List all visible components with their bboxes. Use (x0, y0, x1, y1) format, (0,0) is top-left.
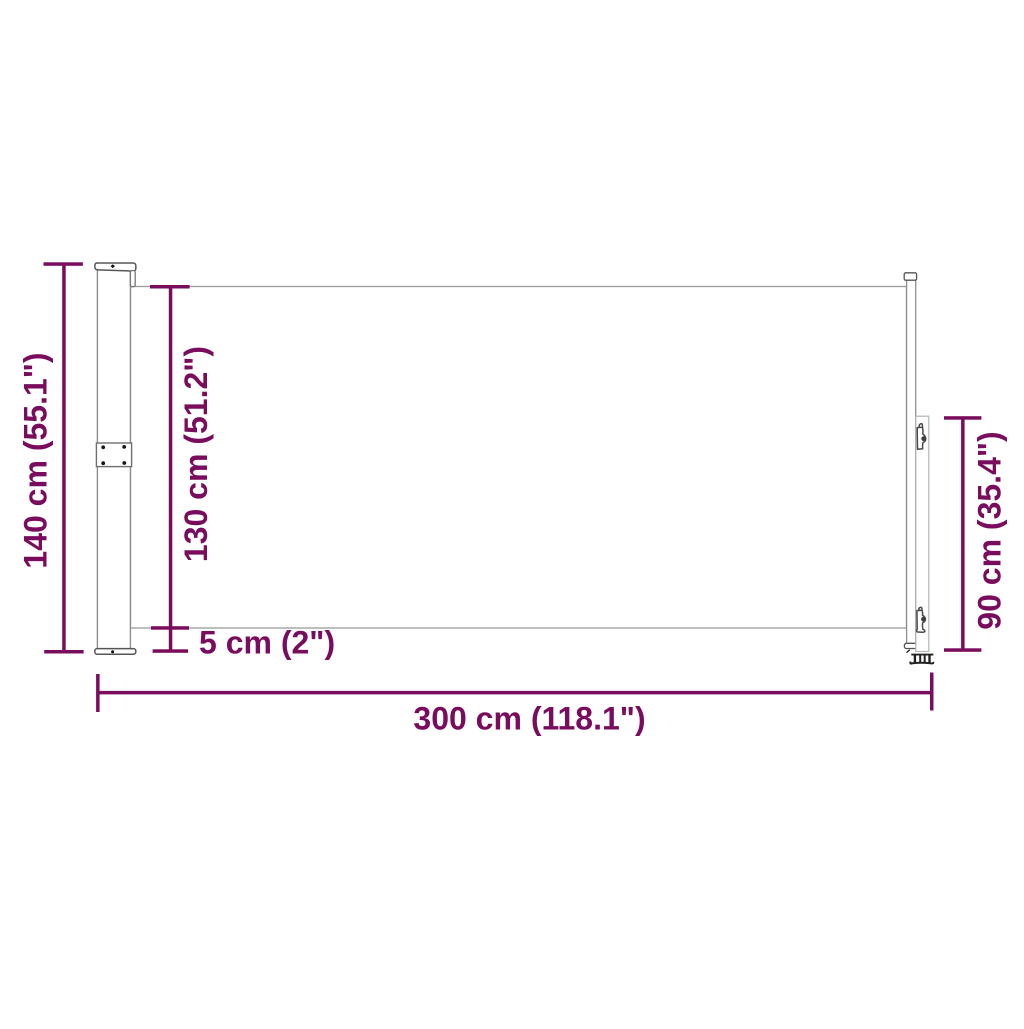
svg-text:130 cm (51.2"): 130 cm (51.2") (178, 346, 214, 562)
svg-text:140 cm (55.1"): 140 cm (55.1") (18, 352, 54, 568)
svg-text:300 cm (118.1"): 300 cm (118.1") (413, 701, 645, 737)
svg-text:90 cm (35.4"): 90 cm (35.4") (972, 431, 1008, 629)
svg-text:5 cm (2"): 5 cm (2") (199, 625, 335, 661)
